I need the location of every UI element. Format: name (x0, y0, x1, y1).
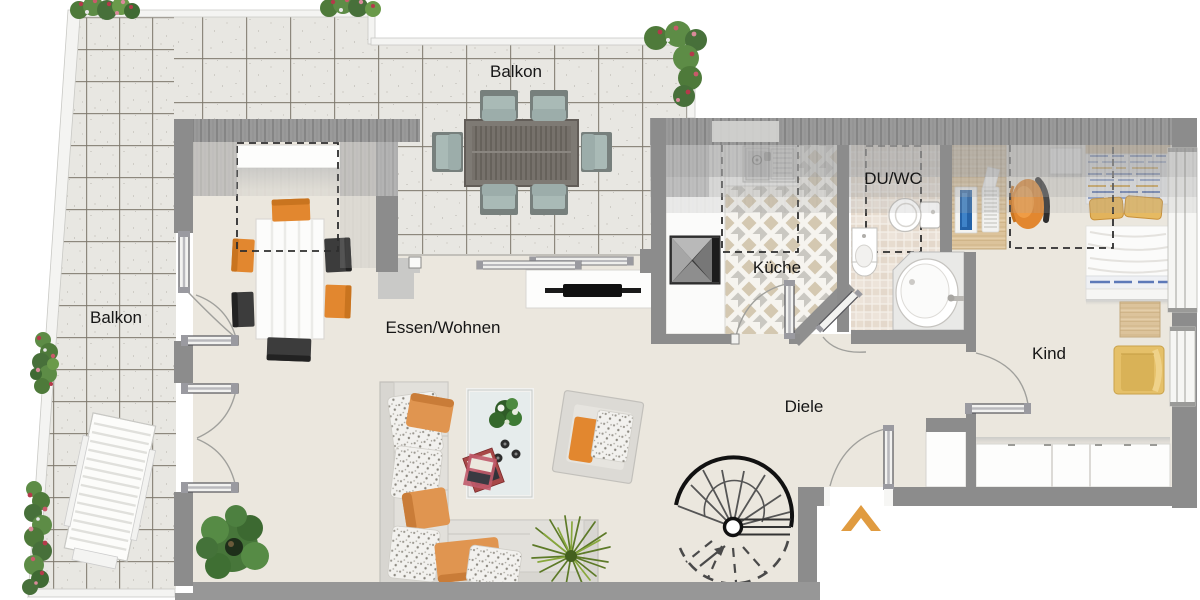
svg-text:Balkon: Balkon (90, 308, 142, 327)
svg-text:DU/WC: DU/WC (864, 169, 922, 188)
svg-text:Diele: Diele (785, 397, 824, 416)
svg-text:Küche: Küche (753, 258, 801, 277)
svg-text:Balkon: Balkon (490, 62, 542, 81)
svg-text:Essen/Wohnen: Essen/Wohnen (386, 318, 501, 337)
svg-text:Kind: Kind (1032, 344, 1066, 363)
